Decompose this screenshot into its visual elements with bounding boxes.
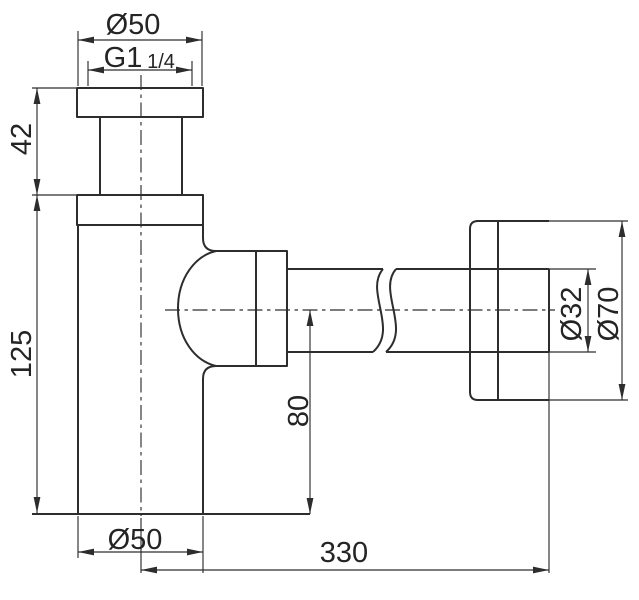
label-thread-fraction: 1/4: [147, 51, 175, 73]
label-body-diameter: Ø50: [108, 524, 163, 556]
outlet-nut: [256, 251, 287, 366]
technical-drawing-bottle-trap: Ø50 G1 1/4 42 125 80 Ø50 330 Ø32 Ø70: [0, 0, 639, 600]
label-wall-flange-diameter: Ø70: [593, 287, 625, 342]
drawing-canvas: Ø50 G1 1/4 42 125 80 Ø50 330 Ø32 Ø70: [0, 0, 639, 600]
dimension-lines: [37, 40, 622, 570]
label-inlet-height: 42: [6, 123, 38, 155]
label-pipe-diameter: Ø32: [556, 287, 588, 342]
dimension-labels: Ø50 G1 1/4 42 125 80 Ø50 330 Ø32 Ø70: [6, 9, 625, 569]
label-thread: G1: [104, 42, 143, 74]
trap-inlet-flange: [77, 88, 203, 195]
extension-lines: [32, 31, 628, 573]
label-top-diameter: Ø50: [106, 9, 161, 41]
trap-body: [32, 195, 310, 514]
label-body-height: 125: [6, 330, 38, 378]
label-pipe-length: 330: [320, 537, 368, 569]
label-outlet-center-height: 80: [283, 395, 315, 427]
